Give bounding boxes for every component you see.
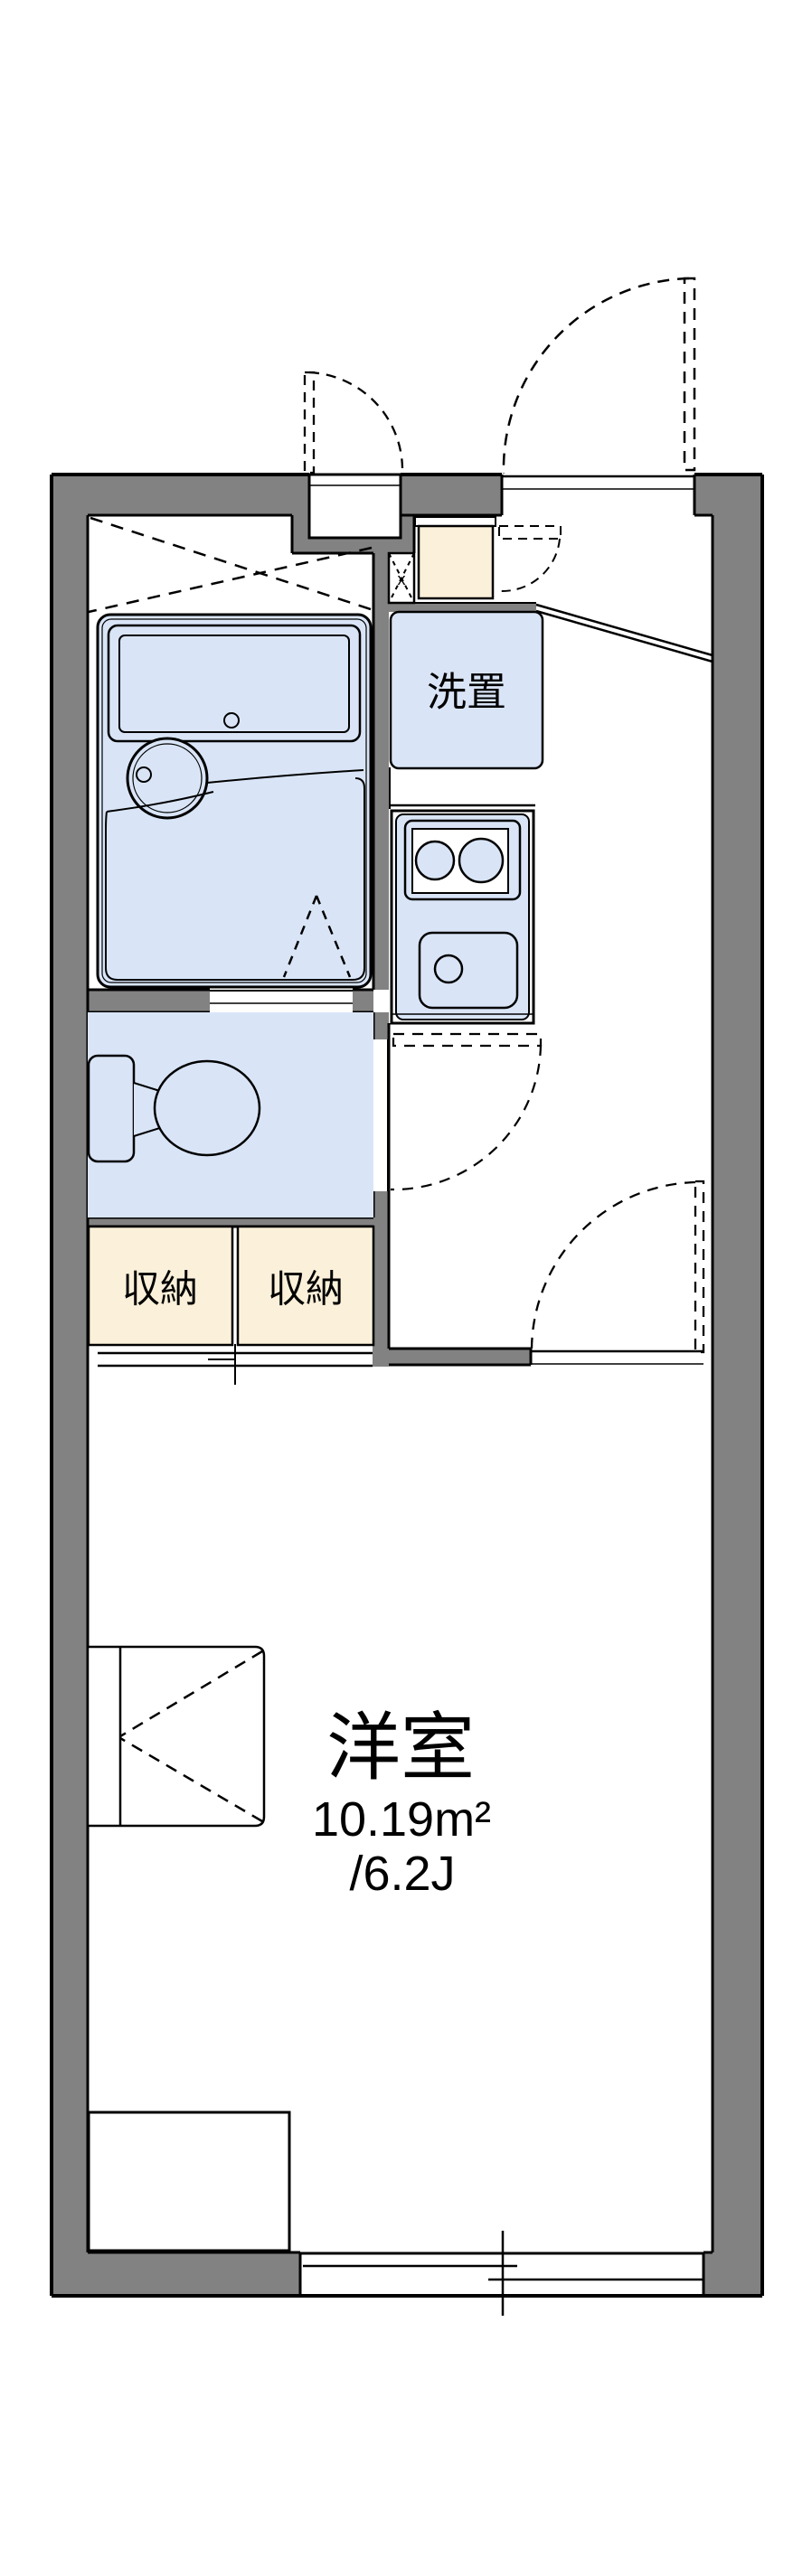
sink-drain bbox=[435, 955, 462, 982]
trunk-recess bbox=[309, 475, 401, 538]
shoe-cabinet bbox=[415, 517, 496, 598]
floorplan-page: x 洗置 bbox=[0, 0, 812, 2576]
toilet-room bbox=[88, 1012, 541, 1217]
desk bbox=[89, 2112, 289, 2251]
genkan-step-edge bbox=[536, 605, 713, 662]
basin-faucet bbox=[137, 767, 151, 782]
closet-right-label: 収納 bbox=[268, 1268, 344, 1311]
wall-left bbox=[52, 475, 88, 2296]
wall-hall-room-divider bbox=[389, 1349, 531, 1365]
wall-strip-above-washer bbox=[389, 604, 536, 612]
room-area-sqm: 10.19m² bbox=[312, 1792, 491, 1847]
bathtub-drain bbox=[224, 713, 239, 728]
stove-burner-right bbox=[459, 839, 503, 882]
toilet-bowl bbox=[155, 1061, 260, 1155]
wall-bottom-right bbox=[703, 2252, 762, 2296]
trunk-door-swing bbox=[305, 372, 402, 473]
wall-bath-toilet-left bbox=[88, 990, 210, 1012]
entrance-door-arc bbox=[504, 278, 689, 474]
bed bbox=[88, 1647, 264, 1826]
washer-area: 洗置 bbox=[391, 612, 543, 768]
room-door bbox=[531, 1181, 703, 1364]
genkan-door-leaf bbox=[499, 526, 561, 539]
western-room: 洋室 10.19m² /6.2J bbox=[88, 1647, 491, 2251]
unit-bath bbox=[89, 518, 373, 1003]
wall-center-divider-upper bbox=[373, 553, 389, 990]
wall-closet-post bbox=[373, 1345, 389, 1367]
wall-center-divider-mid bbox=[373, 1012, 389, 1039]
meter-box-label: x bbox=[398, 570, 406, 588]
room-door-leaf bbox=[695, 1181, 703, 1352]
closet-sliding-doors bbox=[98, 1344, 373, 1385]
stove-burner-left bbox=[416, 841, 454, 879]
wall-top-right bbox=[694, 475, 762, 515]
wall-top-left bbox=[52, 475, 309, 515]
bed-outline bbox=[88, 1647, 264, 1826]
trunk-door-arc bbox=[309, 372, 402, 468]
wall-bath-toilet-right bbox=[353, 990, 373, 1012]
toilet-door-swing bbox=[391, 1034, 541, 1189]
toilet-tank bbox=[89, 1056, 134, 1161]
wall-bottom-left bbox=[52, 2252, 300, 2296]
shoe-cabinet-body bbox=[419, 526, 493, 598]
kitchen bbox=[389, 805, 535, 1023]
room-door-swing bbox=[532, 1181, 703, 1352]
genkan-door-arc bbox=[501, 539, 560, 591]
entrance-door-swing bbox=[504, 278, 694, 474]
wall-top-mid bbox=[401, 475, 502, 515]
sliding-window bbox=[300, 2231, 703, 2316]
genkan-door-swing bbox=[499, 526, 561, 591]
wall-right bbox=[713, 475, 762, 2296]
room-door-arc bbox=[532, 1182, 695, 1352]
floor-plan-svg: x 洗置 bbox=[0, 0, 812, 2576]
meter-box: x bbox=[389, 553, 414, 603]
washer-label: 洗置 bbox=[427, 671, 506, 715]
sliding-door-center-mark bbox=[208, 1344, 235, 1385]
room-labels: 洋室 10.19m² /6.2J bbox=[312, 1707, 491, 1902]
room-name: 洋室 bbox=[326, 1707, 475, 1790]
entrance-door-leaf bbox=[685, 278, 694, 470]
room-area-tatami: /6.2J bbox=[349, 1847, 455, 1901]
shoe-cabinet-top bbox=[415, 517, 496, 526]
trunk-door-leaf bbox=[305, 372, 314, 473]
toilet-door-arc bbox=[391, 1045, 541, 1189]
closet-left-label: 収納 bbox=[122, 1268, 198, 1311]
wall-center-divider-lower bbox=[373, 1191, 389, 1349]
toilet-door-leaf bbox=[393, 1034, 541, 1046]
closets: 収納 収納 bbox=[89, 1227, 373, 1385]
